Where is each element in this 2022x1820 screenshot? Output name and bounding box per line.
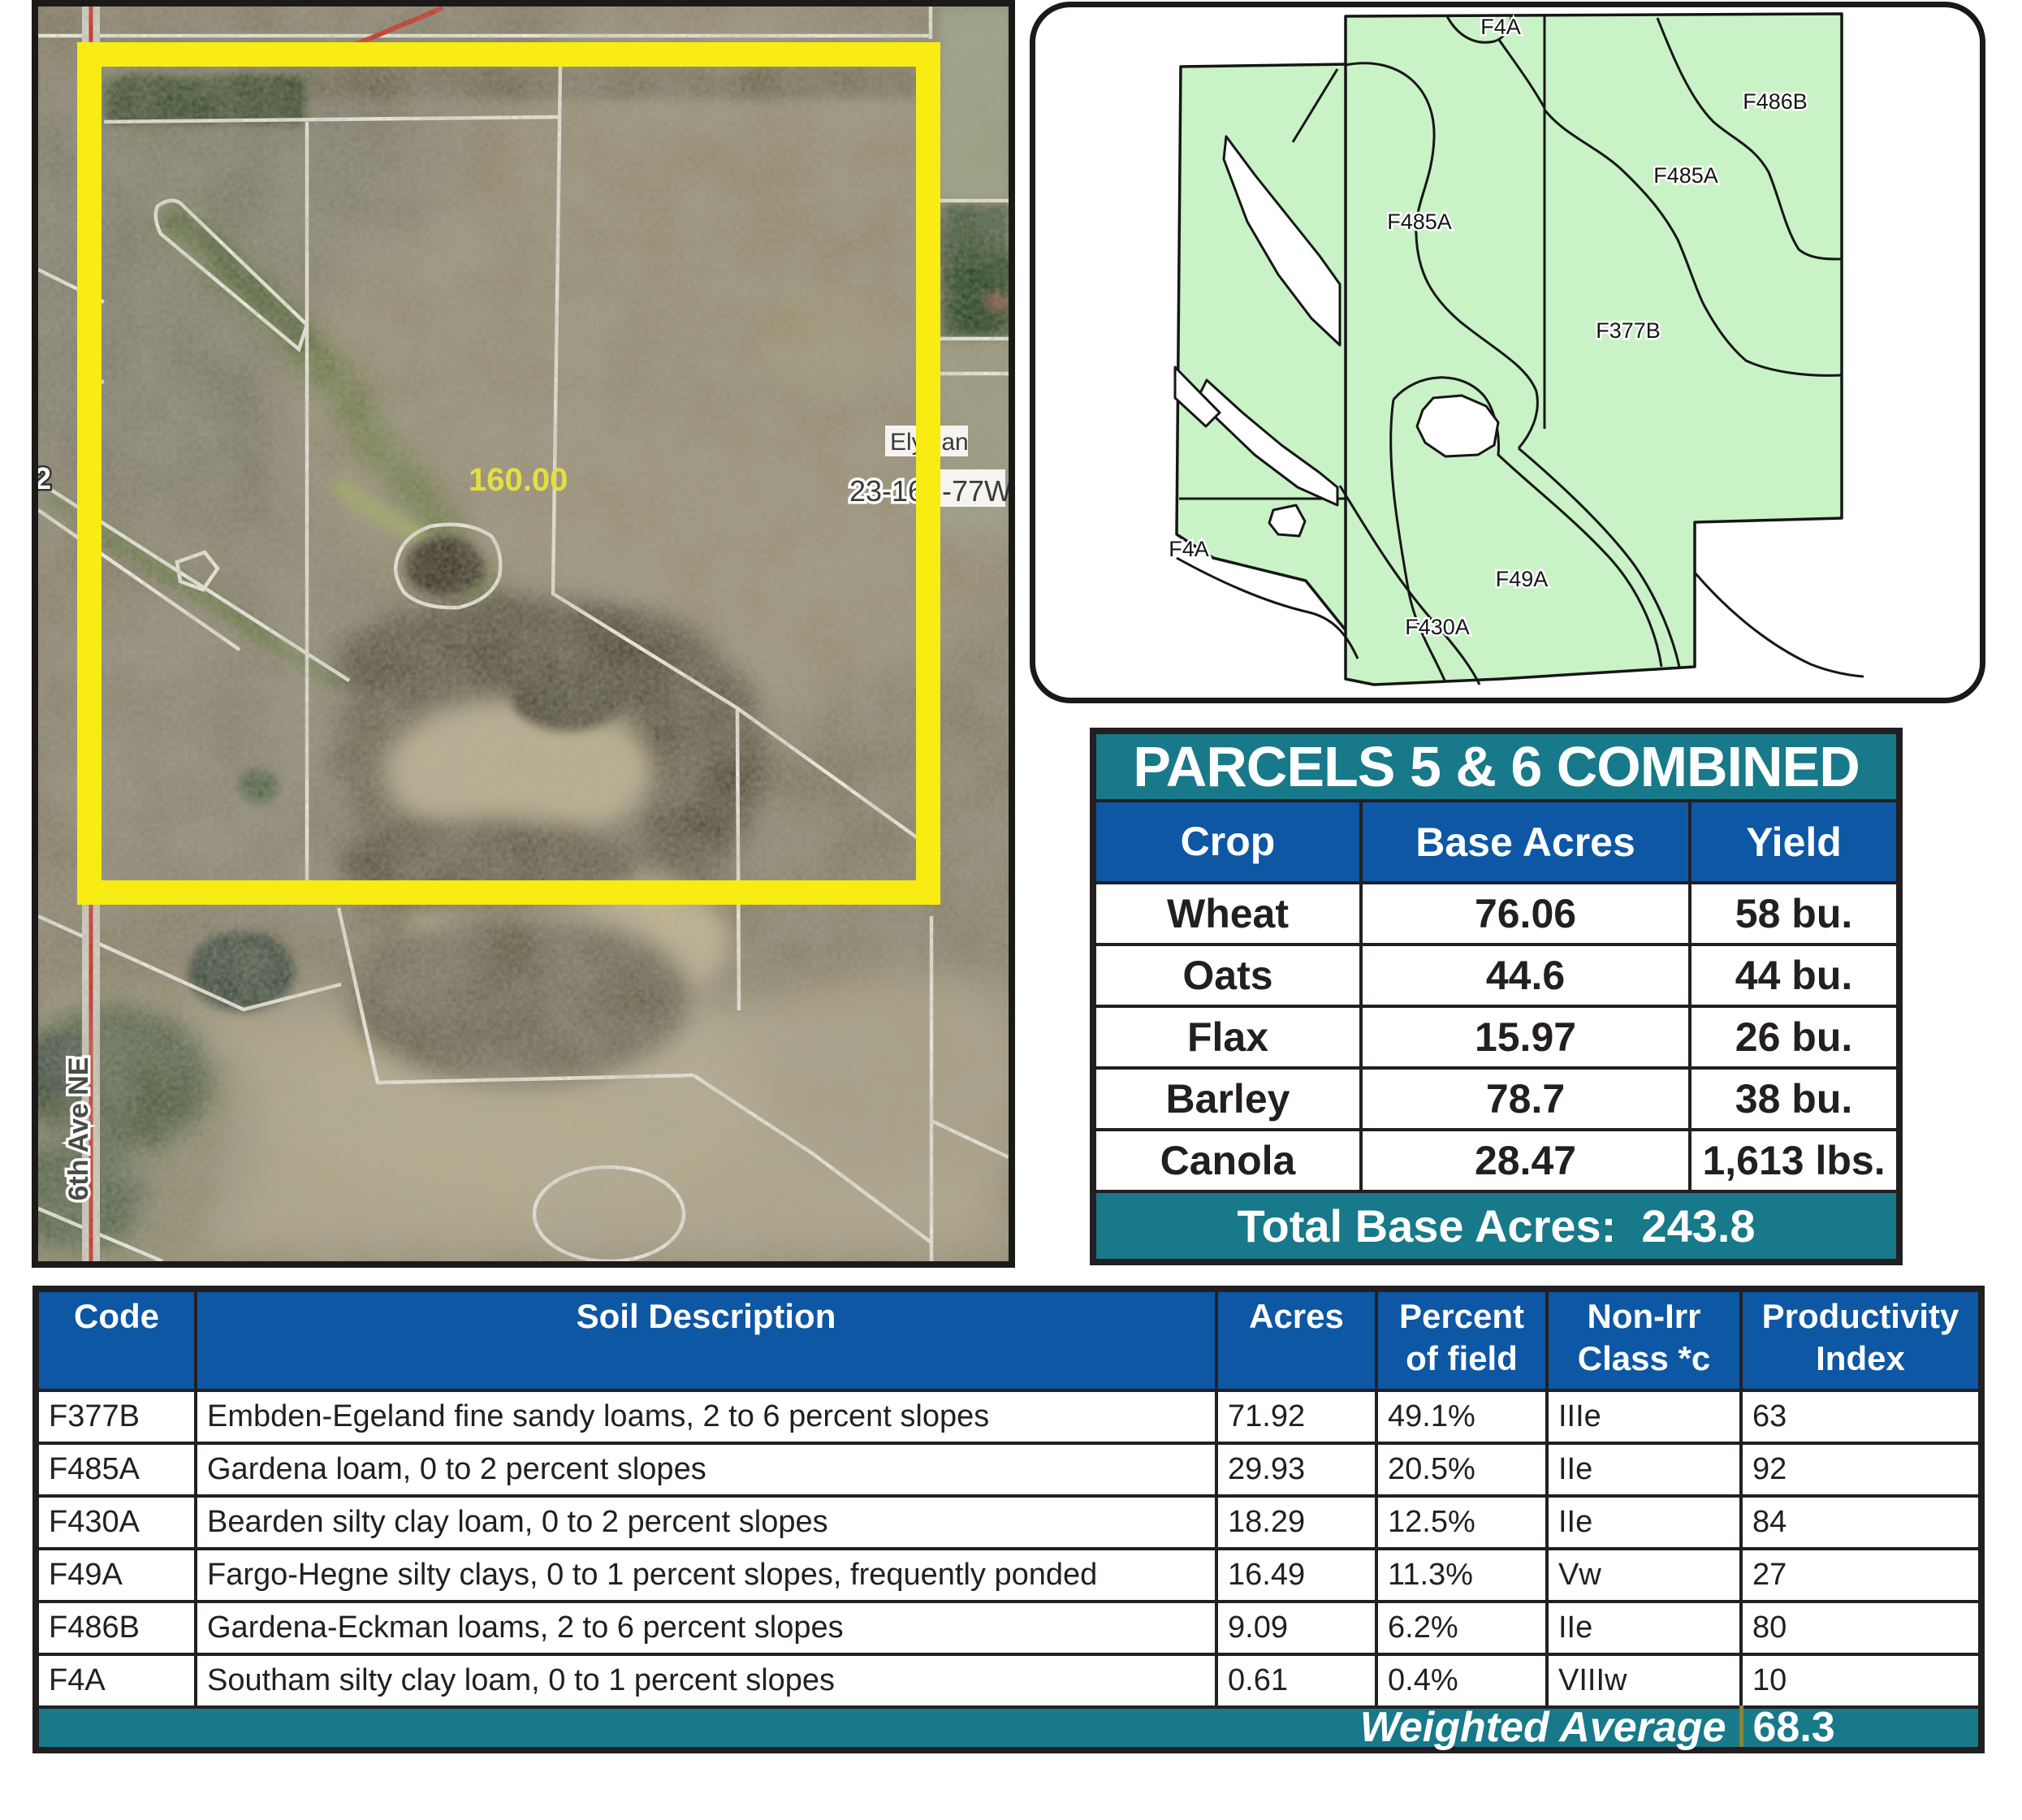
svg-text:2: 2 <box>38 462 51 496</box>
svg-text:-77W: -77W <box>942 474 1009 508</box>
svg-text:F485A: F485A <box>1653 163 1718 188</box>
svg-text:F4A: F4A <box>1480 15 1521 39</box>
svg-text:F4A: F4A <box>1169 537 1209 561</box>
svg-text:F377B: F377B <box>1596 318 1661 343</box>
svg-text:F49A: F49A <box>1496 567 1549 591</box>
svg-text:F486B: F486B <box>1743 89 1808 114</box>
svg-text:160.00: 160.00 <box>469 462 568 498</box>
svg-text:F430A: F430A <box>1405 615 1470 639</box>
svg-text:6th Ave NE: 6th Ave NE <box>63 1057 94 1201</box>
svg-text:F485A: F485A <box>1387 210 1452 234</box>
svg-text:23-16: 23-16 <box>849 474 924 508</box>
